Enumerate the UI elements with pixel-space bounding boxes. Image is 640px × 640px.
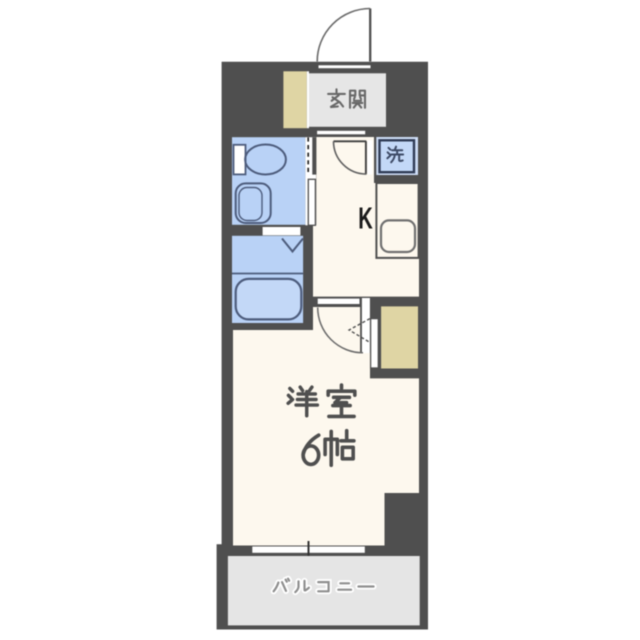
svg-text:K: K: [358, 201, 373, 236]
